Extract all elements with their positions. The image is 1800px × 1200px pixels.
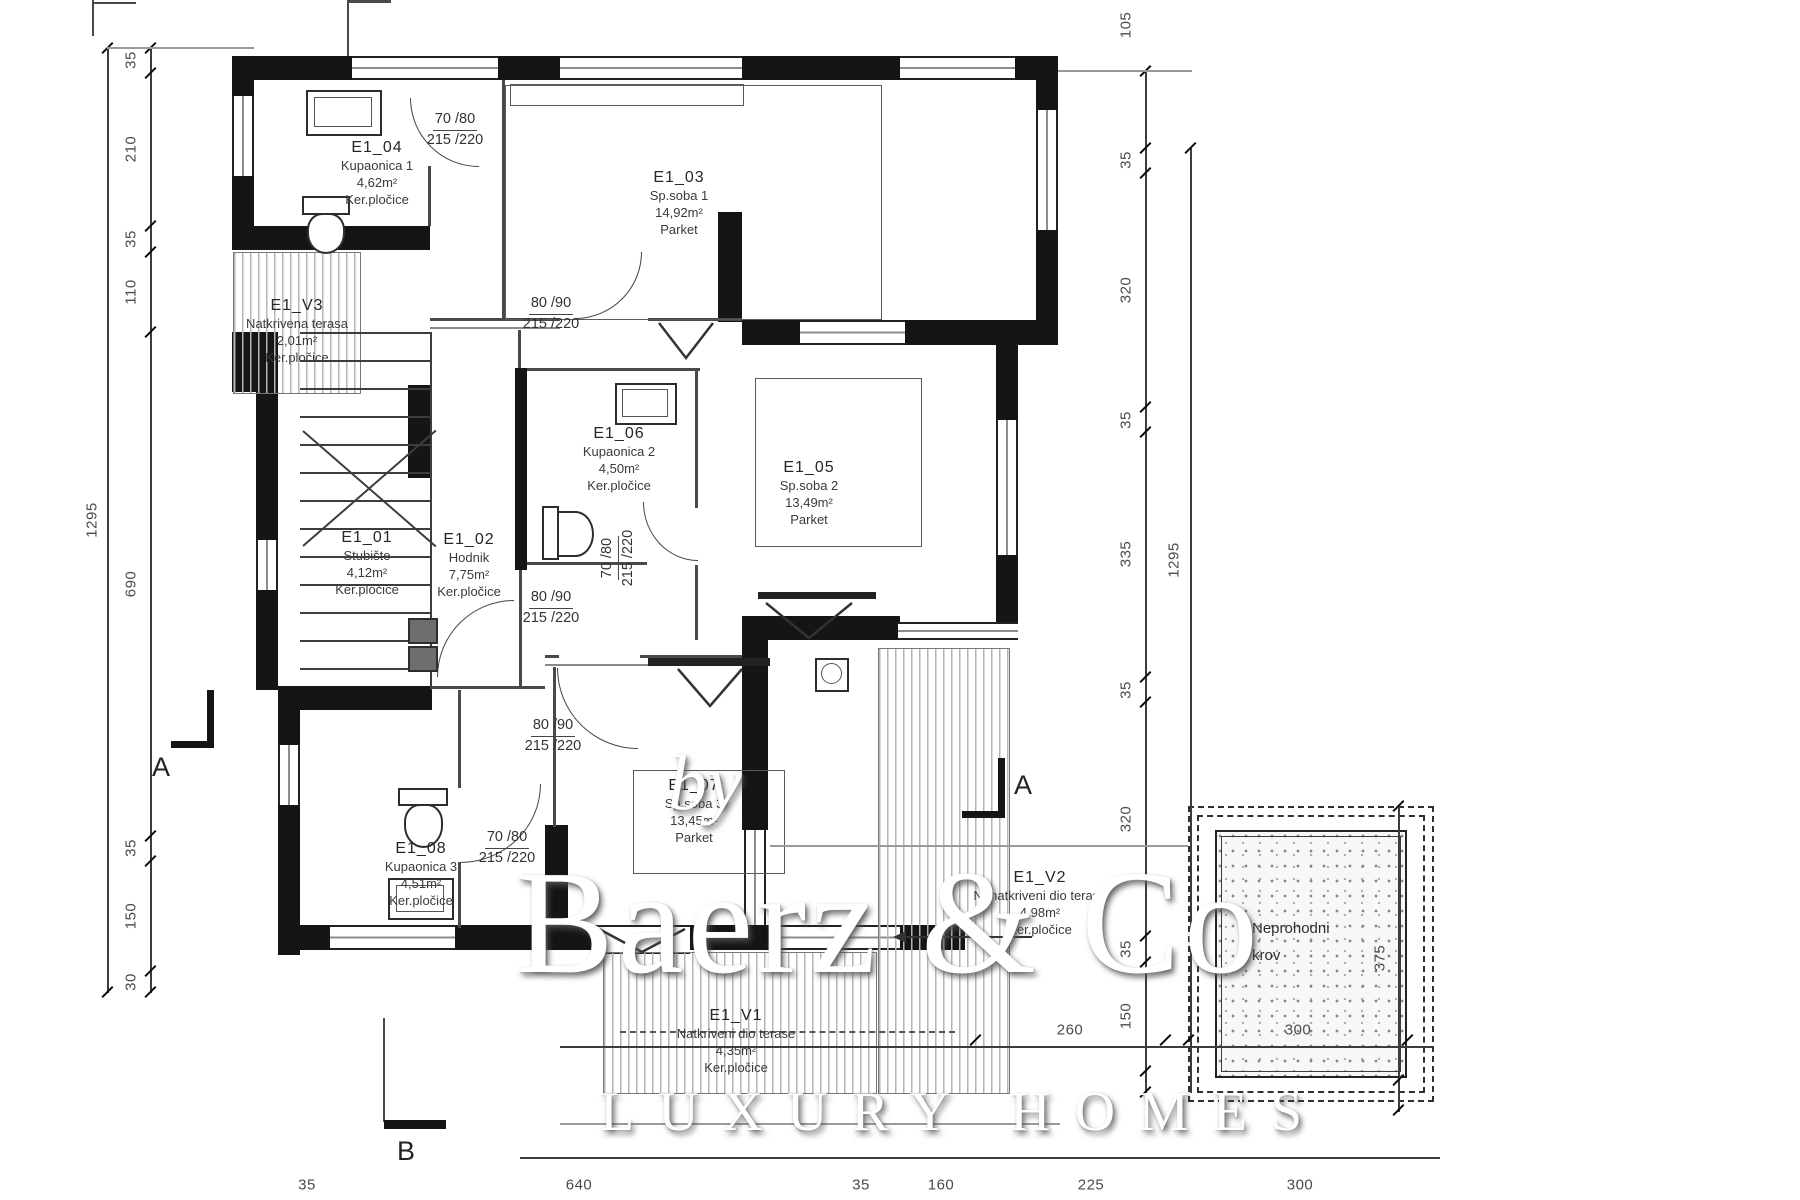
section-b-line <box>383 1018 385 1122</box>
room-name: Hodnik <box>437 550 501 567</box>
niche-bar-mid <box>758 592 876 599</box>
ext-line-mid-right <box>770 845 1188 847</box>
section-a-right-leg <box>962 811 1005 818</box>
door-size: 70 /80 <box>485 828 529 849</box>
wall-bath3-right-b <box>458 862 461 928</box>
window-stair-left <box>256 540 278 590</box>
room-floor: Ker.pločice <box>437 584 501 601</box>
window-bed1-right <box>1036 110 1058 230</box>
dim-label-right-outer: 1295 <box>1166 542 1183 577</box>
dim-line-left-outer <box>107 48 109 993</box>
wall-bath1-right <box>428 166 431 226</box>
room-area: 14,92m² <box>650 205 709 222</box>
section-a-right-letter: A <box>1014 770 1032 801</box>
room-area: 4,50m² <box>583 461 655 478</box>
room-id: E1_V3 <box>246 296 348 316</box>
wall-bed3-left-stub <box>545 825 568 928</box>
room-label-e1-04: E1_04 Kupaonica 1 4,62m² Ker.pločice <box>341 138 413 208</box>
door-height: 215 /220 <box>470 849 544 869</box>
roof-label: Neprohodni krov <box>1252 915 1330 969</box>
door-size: 80 /90 <box>531 716 575 737</box>
window-bed1-bottom <box>800 320 905 345</box>
section-b-bar <box>384 1120 446 1129</box>
room-id: E1_01 <box>335 528 399 548</box>
room-name: Sp.soba 1 <box>650 188 709 205</box>
room-floor: Ker.pločice <box>385 893 457 910</box>
section-a-right-bar <box>998 758 1005 818</box>
dim-label-roof-height: 375 <box>1372 945 1389 972</box>
corner-mark-vert <box>92 0 94 36</box>
dim-label: 35 <box>1118 940 1135 958</box>
section-a-left-letter: A <box>152 752 170 783</box>
wall-bath2-top <box>527 368 700 371</box>
niche-triangle-bottom <box>598 928 686 954</box>
rule-under-terrace <box>560 1123 1060 1125</box>
room-floor: Ker.pločice <box>677 1060 796 1077</box>
dim-label: 35 <box>1118 151 1135 169</box>
dim-label: 640 <box>566 1177 593 1194</box>
room-area: 13,49m² <box>780 495 839 512</box>
dim-label: 150 <box>123 903 140 930</box>
drain-arrow-head <box>893 931 906 943</box>
room-floor: Parket <box>665 830 724 847</box>
room-label-e1-02: E1_02 Hodnik 7,75m² Ker.pločice <box>437 530 501 600</box>
dim-tick <box>1159 1034 1171 1046</box>
wardrobe-bed1 <box>510 84 744 106</box>
room-label-e1-01: E1_01 Stubište 4,12m² Ker.pločice <box>335 528 399 598</box>
room-label-e1-v2: E1_V2 Nenatkriveni dio terase 4,98m² Ker… <box>974 868 1107 938</box>
door-height: 215 /220 <box>514 315 588 335</box>
window-top-2 <box>560 56 742 80</box>
door-height: 215 /220 <box>418 131 492 151</box>
washer-2 <box>408 646 438 672</box>
window-bath3-left <box>278 745 300 805</box>
section-b-top-leg <box>347 0 391 3</box>
dim-label: 35 <box>123 839 140 857</box>
dim-label-left-outer: 1295 <box>84 502 101 537</box>
door-height: 215 /220 <box>619 521 639 595</box>
niche-bar-bed3 <box>648 658 770 666</box>
room-name: Nenatkriveni dio terase <box>974 888 1107 905</box>
dim-line-left-inner <box>150 48 152 993</box>
wall-hall-bottom <box>432 686 545 689</box>
room-name: Kupaonica 1 <box>341 158 413 175</box>
door-arc-d4 <box>437 600 514 677</box>
dim-label: 35 <box>852 1177 870 1194</box>
dim-line-roof-right <box>1398 806 1400 1112</box>
room-label-e1-v3: E1_V3 Natkrivena terasa 2,01m² Ker.ploči… <box>246 296 348 366</box>
door-height: 215 /220 <box>516 737 590 757</box>
boiler-circle <box>821 663 842 684</box>
ext-line-top-left <box>107 47 254 49</box>
dim-label-260: 260 <box>1057 1022 1084 1039</box>
floor-plan-canvas: 70 /80 215 /220 80 /90 215 /220 70 /80 2… <box>0 0 1800 1200</box>
room-area: 4,62m² <box>341 175 413 192</box>
dim-label: 105 <box>1118 12 1135 39</box>
door-height: 215 /220 <box>514 609 588 629</box>
niche-triangle-bed3 <box>677 668 743 708</box>
room-id: E1_02 <box>437 530 501 550</box>
room-name: Sp.soba 2 <box>780 478 839 495</box>
door-size: 70 /80 <box>598 536 619 580</box>
room-area: 4,12m² <box>335 565 399 582</box>
dim-label: 210 <box>123 136 140 163</box>
window-top-3 <box>900 56 1015 80</box>
room-name: Sp.soba 3 <box>665 796 724 813</box>
wall-bath2-right-a <box>695 368 698 508</box>
wall-bath3-left <box>278 690 300 955</box>
room-id: E1_06 <box>583 424 655 444</box>
door-label-d5: 80 /90 215 /220 <box>516 716 590 756</box>
door-label-d3: 70 /80 215 /220 <box>598 521 638 595</box>
room-id: E1_V1 <box>677 1006 796 1026</box>
window-top-1 <box>352 56 498 80</box>
room-label-e1-05: E1_05 Sp.soba 2 13,49m² Parket <box>780 458 839 528</box>
dim-label: 35 <box>298 1177 316 1194</box>
door-label-d1: 70 /80 215 /220 <box>418 110 492 150</box>
dim-label: 35 <box>1118 411 1135 429</box>
room-area: 13,45m² <box>665 813 724 830</box>
room-name: Natkrivena terasa <box>246 316 348 333</box>
roof-label-line1: Neprohodni <box>1252 915 1330 942</box>
toilet-bath1-bowl <box>307 213 345 254</box>
room-name: Stubište <box>335 548 399 565</box>
room-name: Natkriveni dio terase <box>677 1026 796 1043</box>
room-floor: Parket <box>780 512 839 529</box>
dim-label: 335 <box>1118 541 1135 568</box>
room-floor: Ker.pločice <box>583 478 655 495</box>
room-area: 2,01m² <box>246 333 348 350</box>
section-b-letter: B <box>397 1136 415 1167</box>
washer-1 <box>408 618 438 644</box>
dim-label: 110 <box>123 279 140 304</box>
room-id: E1_05 <box>780 458 839 478</box>
room-area: 4,98m² <box>974 905 1107 922</box>
ext-line-top-right <box>1058 70 1192 72</box>
dim-label: 320 <box>1118 806 1135 833</box>
niche-triangle-mid <box>765 602 853 640</box>
room-floor: Parket <box>650 222 709 239</box>
wall-bath3-right-a <box>458 690 461 788</box>
room-label-e1-07: E1_07 Sp.soba 3 13,45m² Parket <box>665 776 724 846</box>
wall-hall-right-upper <box>518 330 521 368</box>
door-label-d6: 70 /80 215 /220 <box>470 828 544 868</box>
window-bed2-bottom <box>898 622 1018 640</box>
room-label-e1-03: E1_03 Sp.soba 1 14,92m² Parket <box>650 168 709 238</box>
door-label-d2: 80 /90 215 /220 <box>514 294 588 334</box>
dim-label-roof-width: 300 <box>1285 1022 1312 1039</box>
window-bed2-right <box>996 420 1018 555</box>
window-bottom-1 <box>330 925 455 950</box>
dim-label: 300 <box>1287 1177 1314 1194</box>
dim-label: 150 <box>1118 1003 1135 1030</box>
drain-arrow-line <box>905 936 1032 938</box>
dim-label: 35 <box>123 51 140 69</box>
door-size: 80 /90 <box>529 294 573 315</box>
dim-label: 690 <box>123 571 140 598</box>
room-id: E1_07 <box>665 776 724 796</box>
corner-mark-horiz <box>92 2 136 4</box>
dim-label: 35 <box>123 230 140 248</box>
dim-label: 30 <box>123 973 140 991</box>
room-name: Kupaonica 3 <box>385 859 457 876</box>
niche-triangle-top <box>658 322 714 360</box>
wall-bath2-right-b <box>695 565 698 640</box>
door-size: 80 /90 <box>529 588 573 609</box>
room-name: Kupaonica 2 <box>583 444 655 461</box>
dim-label: 35 <box>1118 681 1135 699</box>
room-label-e1-06: E1_06 Kupaonica 2 4,50m² Ker.pločice <box>583 424 655 494</box>
dim-line-bottom <box>520 1157 1440 1159</box>
dim-label: 160 <box>928 1177 955 1194</box>
roof-label-line2: krov <box>1252 942 1330 969</box>
room-area: 7,75m² <box>437 567 501 584</box>
room-area: 4,51m² <box>385 876 457 893</box>
section-a-left-bar <box>207 690 214 748</box>
sink-bath2-basin <box>622 389 668 417</box>
dim-line-right-outer <box>1190 148 1192 1093</box>
door-label-d4: 80 /90 215 /220 <box>514 588 588 628</box>
sink-bath1-basin <box>314 97 372 127</box>
door-arc-d3 <box>643 502 698 561</box>
dim-line-roof-width <box>560 1046 1432 1048</box>
section-a-left-leg <box>171 741 214 748</box>
wall-bath2-left <box>515 368 527 570</box>
wall-bed3-top-a <box>545 655 559 658</box>
room-floor: Ker.pločice <box>341 192 413 209</box>
room-id: E1_08 <box>385 839 457 859</box>
section-b-top-line <box>347 0 349 56</box>
room-id: E1_04 <box>341 138 413 158</box>
room-id: E1_03 <box>650 168 709 188</box>
window-left-upper <box>232 96 254 176</box>
room-floor: Ker.pločice <box>335 582 399 599</box>
room-id: E1_V2 <box>974 868 1107 888</box>
dim-line-right-inner <box>1145 71 1147 1093</box>
dim-label: 225 <box>1078 1177 1105 1194</box>
room-label-e1-v1: E1_V1 Natkriveni dio terase 4,35m² Ker.p… <box>677 1006 796 1076</box>
dim-label: 320 <box>1118 277 1135 304</box>
room-label-e1-08: E1_08 Kupaonica 3 4,51m² Ker.pločice <box>385 839 457 909</box>
room-floor: Ker.pločice <box>246 350 348 367</box>
door-size: 70 /80 <box>433 110 477 131</box>
toilet-bath2-bowl <box>557 511 594 557</box>
